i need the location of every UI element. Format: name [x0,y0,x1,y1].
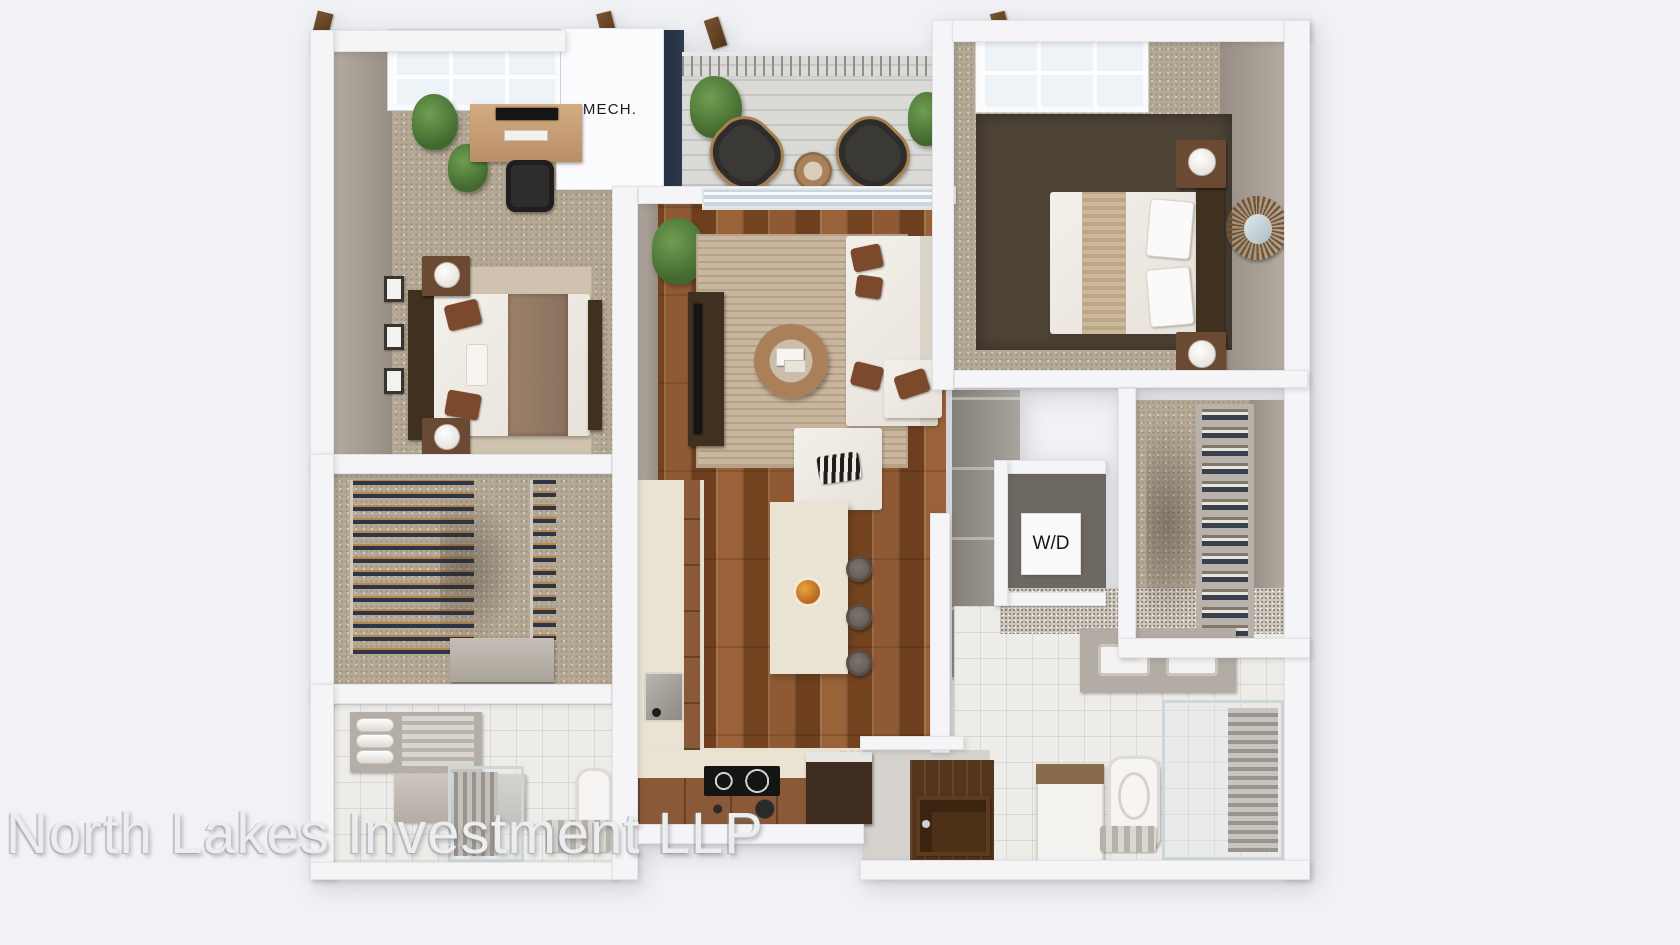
island-stool [846,556,872,582]
island-stool [846,650,872,676]
entry-door-handle [922,820,930,828]
screenshot-root: { "watermark": { "text": "North Lakes In… [0,0,1680,945]
bed-left-pillow [444,389,482,421]
bed-right-pillow [1146,266,1195,328]
wall [310,30,566,52]
wall [1118,638,1310,658]
island-stool [846,604,872,630]
bed-right-headboard [1196,186,1224,340]
roof-post [704,16,728,49]
bed-left-foot-bench [588,300,602,430]
bath-mat [1100,826,1156,852]
wall [310,30,334,480]
wall [954,370,1308,388]
wall [952,20,1310,42]
rolled-towel [356,718,394,732]
mech-room-label: MECH. [583,101,637,118]
kitchen-cabinets-left [684,480,700,750]
balcony-side-table [794,152,832,190]
wall [310,454,612,474]
balcony-sliding-door-frame [702,188,946,208]
wall [994,460,1008,606]
desk-monitor [496,108,558,120]
wall [1118,388,1136,658]
desk-chair [506,160,554,212]
rolled-towel [356,734,394,748]
coffee-table-magazine [784,360,806,373]
kitchen-faucet [652,708,661,717]
closet-right-folded-clothes [1202,408,1248,636]
bed-left-throw-blanket [508,294,568,436]
toilet-seat [1118,772,1150,820]
folded-towel-stack [402,716,474,766]
nightstand-lamp [1188,148,1216,176]
wall [930,513,950,753]
wall [994,592,1106,606]
wall [860,736,964,750]
wall [994,460,1106,474]
wall [310,454,334,706]
wall-art-frame [384,276,404,302]
washer-dryer-closet: W/D [1022,514,1080,574]
nightstand-lamp [1188,340,1216,368]
wall [310,684,612,704]
watermark: North Lakes Investment LLP [6,800,764,867]
bedroom-left-plant [412,94,458,150]
sunburst-mirror-glass [1244,214,1272,244]
closet-left-dresser [450,638,554,682]
kitchen-sink [644,672,684,722]
bed-left-pillow-white [466,344,488,386]
washer-dryer-label: W/D [1033,533,1070,555]
sofa-pillow [855,274,884,299]
wall-art-frame [384,368,404,394]
balcony-railing [682,52,948,78]
washstand-wood-top [1036,764,1104,784]
bed-right-pillow [1146,198,1195,260]
cooktop [704,766,780,796]
nightstand-lamp [434,424,460,450]
nightstand-lamp [434,262,460,288]
rolled-towel [356,750,394,764]
floor-plan: MECH. [300,8,1315,880]
bed-right-runner [1082,192,1126,334]
shower-right-louvers [1228,708,1278,852]
wall [932,20,954,390]
closet-left-shadow [440,490,518,648]
wall [1284,20,1310,880]
wall [612,186,638,880]
closet-left-hanging-clothes [530,480,556,640]
armchair-striped-pillow [816,451,861,485]
desk-keyboard [504,130,548,141]
wall-art-frame [384,324,404,350]
fruit-bowl [796,580,820,604]
tv [694,304,702,434]
refrigerator [806,752,872,824]
wall [860,860,1310,880]
